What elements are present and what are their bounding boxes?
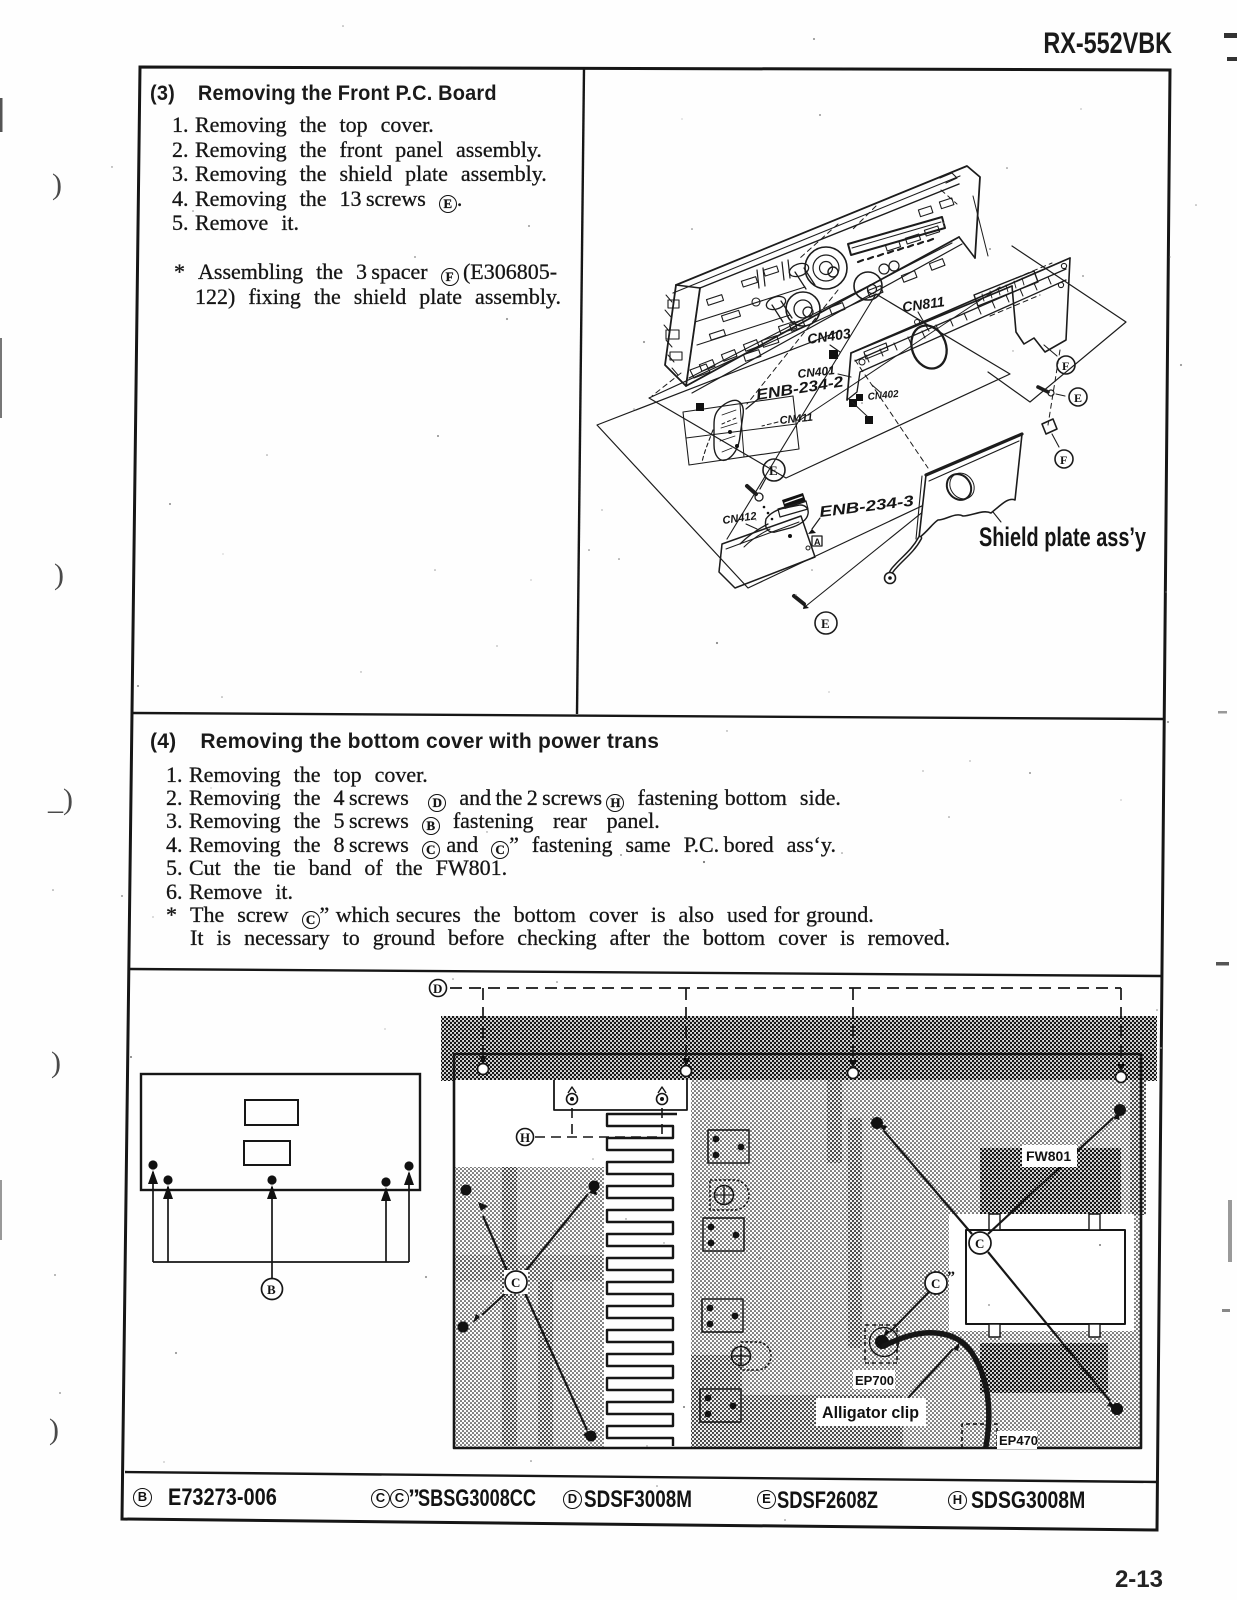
svg-text:Shield plate ass’y: Shield plate ass’y xyxy=(979,522,1146,552)
svg-text:E: E xyxy=(769,463,778,478)
svg-text:CN411: CN411 xyxy=(779,412,814,427)
svg-text:CN402: CN402 xyxy=(867,389,900,403)
svg-text:H: H xyxy=(520,1130,530,1145)
svg-text:”: ” xyxy=(947,1269,955,1286)
svg-text:ENB-234-3: ENB-234-3 xyxy=(818,492,915,521)
svg-text:CN811: CN811 xyxy=(901,293,946,315)
svg-text:B: B xyxy=(267,1282,276,1297)
svg-text:E: E xyxy=(821,616,830,631)
svg-text:EP700: EP700 xyxy=(855,1373,894,1388)
svg-text:CN403: CN403 xyxy=(806,325,852,347)
svg-text:EP470: EP470 xyxy=(999,1433,1038,1448)
svg-text:E: E xyxy=(1074,391,1082,405)
svg-text:CN412: CN412 xyxy=(722,510,758,527)
svg-text:C: C xyxy=(931,1276,940,1291)
svg-text:FW801: FW801 xyxy=(1026,1148,1071,1164)
svg-text:C: C xyxy=(975,1236,984,1251)
svg-text:C: C xyxy=(511,1275,520,1290)
svg-text:F: F xyxy=(1062,359,1069,373)
svg-text:Alligator clip: Alligator clip xyxy=(822,1403,919,1422)
svg-text:F: F xyxy=(1060,453,1067,467)
svg-text:A: A xyxy=(814,537,821,547)
svg-text:D: D xyxy=(433,981,442,996)
